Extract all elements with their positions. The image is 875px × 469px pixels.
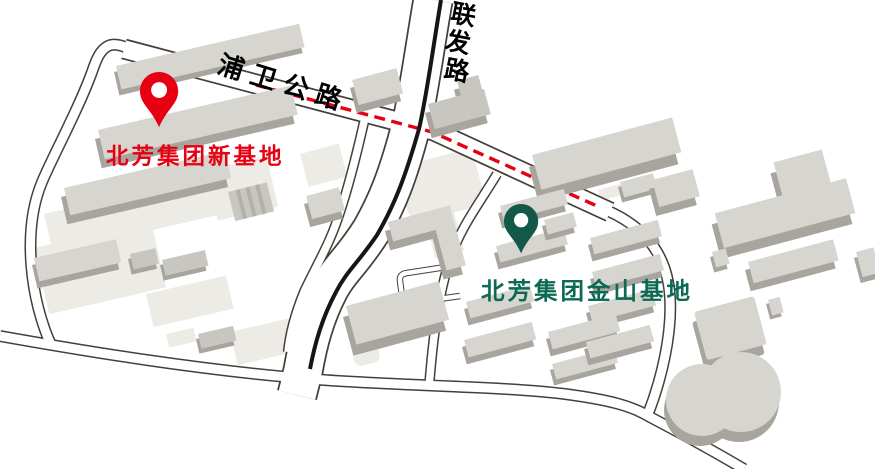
label-jinshan-base: 北芳集团金山基地: [481, 277, 693, 305]
map-canvas: 浦卫公路 联 发 路 北芳集团新基地 北芳集团金山基地: [0, 0, 875, 469]
map-stage: 浦卫公路 联 发 路 北芳集团新基地 北芳集团金山基地: [0, 0, 875, 469]
label-new-base: 北芳集团新基地: [106, 143, 285, 170]
